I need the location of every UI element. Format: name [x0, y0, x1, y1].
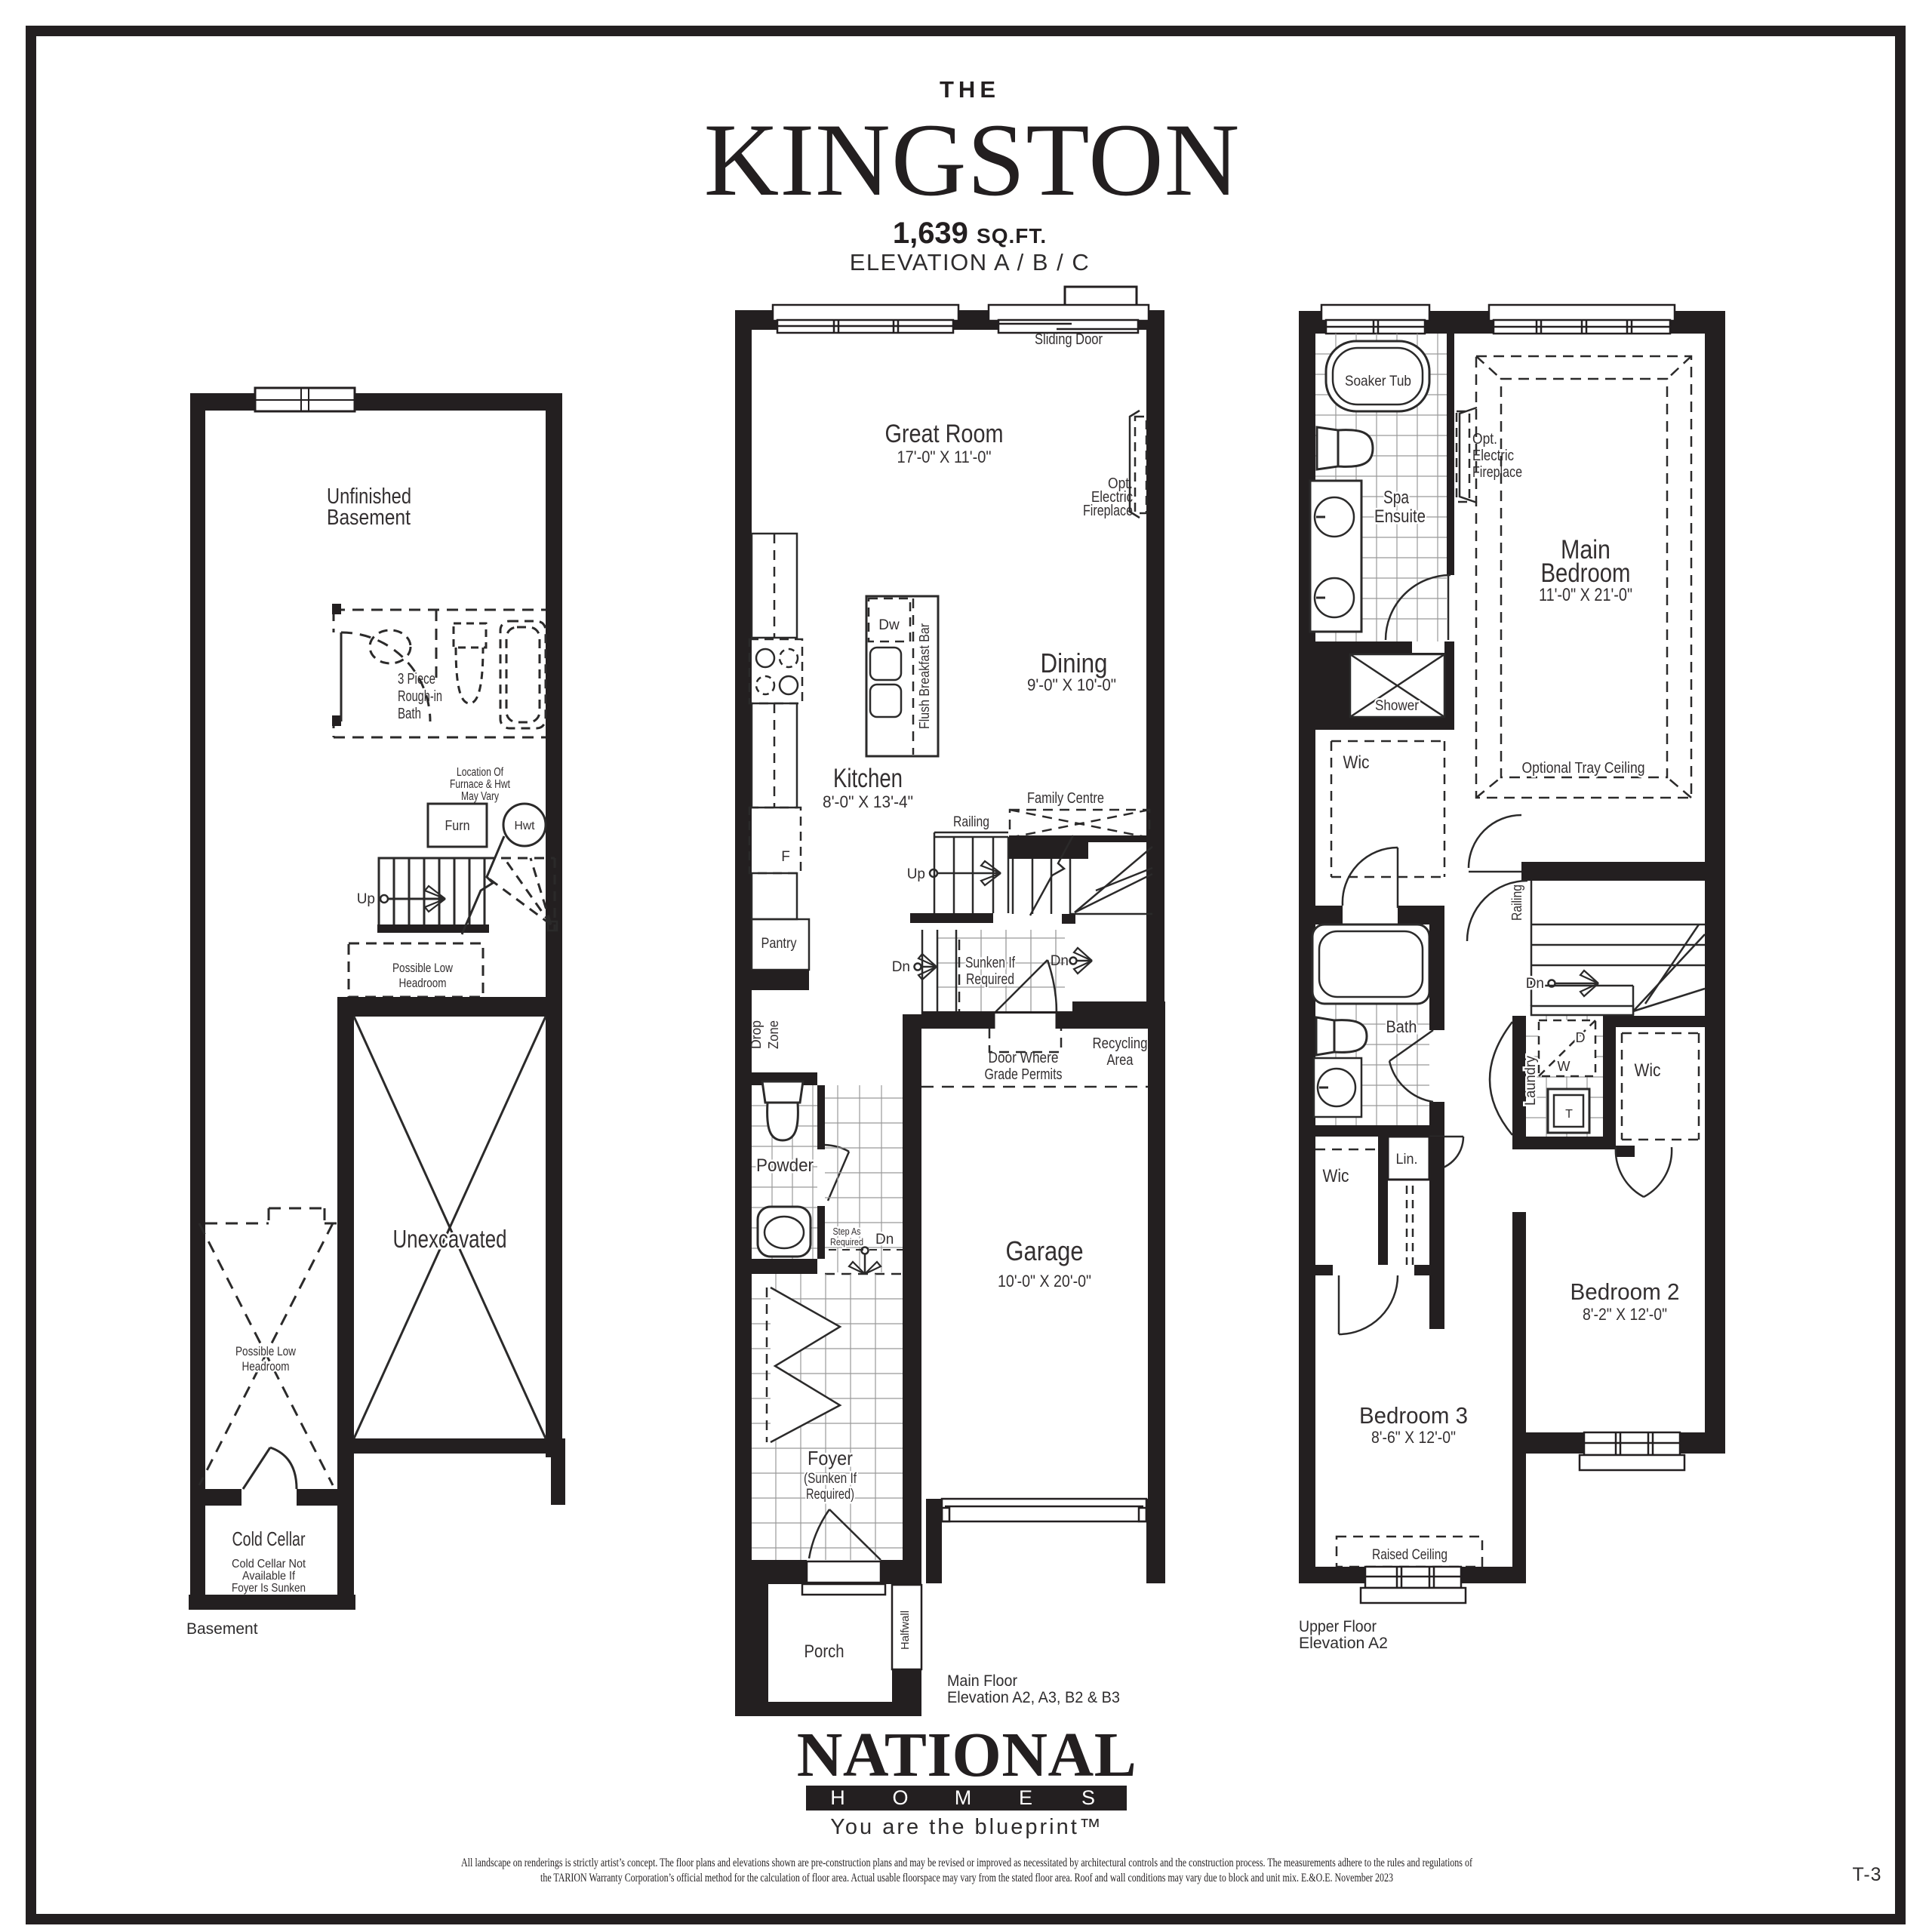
- svg-text:Laundry: Laundry: [1522, 1056, 1539, 1106]
- svg-text:Hwt: Hwt: [515, 820, 536, 832]
- svg-text:T-3: T-3: [1852, 1864, 1881, 1885]
- svg-text:Porch: Porch: [804, 1641, 844, 1662]
- svg-text:Required: Required: [830, 1236, 863, 1247]
- svg-text:Required): Required): [806, 1486, 854, 1503]
- svg-text:Railing: Railing: [1509, 884, 1524, 921]
- svg-text:Up: Up: [357, 891, 375, 907]
- svg-text:8'-2" X 12'-0": 8'-2" X 12'-0": [1583, 1305, 1667, 1324]
- svg-text:Lin.: Lin.: [1396, 1151, 1418, 1168]
- svg-text:Dn: Dn: [1051, 953, 1069, 969]
- svg-text:THE: THE: [940, 76, 1000, 103]
- svg-text:Raised Ceiling: Raised Ceiling: [1372, 1546, 1447, 1563]
- svg-text:the TARION Warranty Corporatio: the TARION Warranty Corporation’s offici…: [540, 1872, 1393, 1884]
- svg-text:Dining: Dining: [1041, 648, 1108, 678]
- svg-text:Location Of: Location Of: [457, 766, 504, 779]
- svg-text:Cold Cellar: Cold Cellar: [232, 1527, 306, 1550]
- svg-text:All landscape on renderings is: All landscape on renderings is strictly …: [461, 1857, 1473, 1869]
- svg-text:(Sunken If: (Sunken If: [804, 1470, 857, 1487]
- svg-text:Headroom: Headroom: [399, 977, 447, 990]
- svg-text:10'-0" X 20'-0": 10'-0" X 20'-0": [998, 1272, 1091, 1291]
- svg-text:Soaker Tub: Soaker Tub: [1345, 373, 1411, 389]
- svg-text:3 Piece: 3 Piece: [398, 671, 435, 688]
- svg-text:11'-0" X 21'-0": 11'-0" X 21'-0": [1539, 585, 1632, 605]
- svg-text:Elevation A2, A3, B2 & B3: Elevation A2, A3, B2 & B3: [947, 1689, 1120, 1706]
- svg-text:Bath: Bath: [1386, 1017, 1417, 1036]
- svg-text:Drop: Drop: [748, 1020, 764, 1049]
- svg-text:E: E: [1019, 1786, 1032, 1809]
- svg-text:Dn: Dn: [892, 959, 910, 975]
- svg-text:Flush Breakfast Bar: Flush Breakfast Bar: [917, 623, 932, 729]
- svg-text:Dw: Dw: [878, 617, 900, 633]
- svg-text:Elevation A2: Elevation A2: [1299, 1635, 1388, 1652]
- svg-text:S: S: [1081, 1786, 1095, 1809]
- svg-text:ELEVATION A / B / C: ELEVATION A / B / C: [850, 249, 1091, 275]
- svg-text:Main Floor: Main Floor: [947, 1672, 1017, 1690]
- svg-text:Bedroom: Bedroom: [1541, 558, 1631, 588]
- svg-text:Halfwall: Halfwall: [899, 1611, 912, 1650]
- svg-text:Family Centre: Family Centre: [1027, 789, 1104, 807]
- svg-text:Possible Low: Possible Low: [392, 961, 453, 975]
- svg-text:Garage: Garage: [1006, 1235, 1084, 1266]
- svg-text:Basement: Basement: [327, 506, 411, 530]
- svg-text:Area: Area: [1107, 1051, 1134, 1069]
- svg-text:17'-0" X 11'-0": 17'-0" X 11'-0": [897, 448, 992, 466]
- svg-text:Unexcavated: Unexcavated: [393, 1225, 507, 1253]
- svg-text:Up: Up: [907, 866, 925, 882]
- svg-text:Headroom: Headroom: [242, 1360, 290, 1374]
- svg-text:Sunken If: Sunken If: [965, 954, 1015, 971]
- svg-text:W: W: [1558, 1059, 1571, 1074]
- svg-text:May Vary: May Vary: [461, 790, 499, 803]
- svg-text:Furnace & Hwt: Furnace & Hwt: [450, 778, 511, 791]
- svg-text:Fireplace: Fireplace: [1472, 463, 1522, 481]
- svg-text:F: F: [781, 849, 790, 865]
- svg-text:Basement: Basement: [186, 1620, 258, 1638]
- svg-text:Fireplace: Fireplace: [1083, 502, 1133, 519]
- svg-text:8'-6" X 12'-0": 8'-6" X 12'-0": [1371, 1428, 1456, 1447]
- svg-text:Foyer Is Sunken: Foyer Is Sunken: [232, 1582, 306, 1595]
- svg-text:Grade Permits: Grade Permits: [985, 1066, 1063, 1083]
- svg-text:Powder: Powder: [756, 1155, 814, 1176]
- svg-text:9'-0" X 10'-0": 9'-0" X 10'-0": [1027, 675, 1116, 694]
- svg-text:Available If: Available If: [242, 1570, 295, 1583]
- svg-text:Bedroom 3: Bedroom 3: [1359, 1402, 1468, 1429]
- svg-text:Zone: Zone: [765, 1020, 781, 1049]
- svg-text:Dn: Dn: [875, 1232, 894, 1247]
- svg-text:Bedroom 2: Bedroom 2: [1571, 1278, 1680, 1305]
- svg-text:Recycling: Recycling: [1093, 1035, 1148, 1052]
- svg-text:Wic: Wic: [1343, 752, 1370, 773]
- svg-text:Furn: Furn: [445, 818, 470, 833]
- svg-text:Rough-in: Rough-in: [398, 688, 442, 705]
- svg-text:Required: Required: [966, 971, 1014, 988]
- svg-text:M: M: [955, 1786, 972, 1809]
- svg-text:Step As: Step As: [833, 1226, 861, 1237]
- svg-text:D: D: [1576, 1030, 1586, 1045]
- svg-text:KINGSTON: KINGSTON: [704, 102, 1241, 217]
- svg-text:Wic: Wic: [1323, 1166, 1349, 1186]
- svg-text:You are the blueprint™: You are the blueprint™: [830, 1815, 1103, 1839]
- svg-text:T: T: [1565, 1108, 1573, 1121]
- svg-text:Great Room: Great Room: [885, 420, 1004, 448]
- svg-text:Shower: Shower: [1375, 697, 1419, 714]
- svg-text:Upper Floor: Upper Floor: [1299, 1618, 1377, 1635]
- svg-text:NATIONAL: NATIONAL: [797, 1720, 1137, 1790]
- svg-text:Foyer: Foyer: [808, 1447, 853, 1469]
- svg-text:Electric: Electric: [1472, 447, 1514, 464]
- svg-text:Wic: Wic: [1635, 1060, 1661, 1081]
- svg-text:Sliding Door: Sliding Door: [1035, 331, 1103, 348]
- svg-text:Cold Cellar Not: Cold Cellar Not: [232, 1558, 306, 1571]
- svg-text:Possible Low: Possible Low: [235, 1345, 296, 1358]
- svg-text:H: H: [830, 1786, 845, 1809]
- svg-text:O: O: [892, 1786, 908, 1809]
- svg-text:Bath: Bath: [398, 706, 421, 722]
- svg-text:Ensuite: Ensuite: [1374, 506, 1426, 527]
- svg-text:Spa: Spa: [1383, 488, 1410, 508]
- svg-text:Dn: Dn: [1526, 976, 1544, 992]
- svg-text:Pantry: Pantry: [761, 935, 797, 952]
- svg-text:8'-0" X 13'-4": 8'-0" X 13'-4": [823, 792, 913, 811]
- svg-text:Kitchen: Kitchen: [833, 764, 903, 793]
- svg-text:Door Where: Door Where: [989, 1049, 1059, 1066]
- svg-text:Optional Tray Ceiling: Optional Tray Ceiling: [1522, 759, 1645, 777]
- svg-text:Railing: Railing: [953, 814, 989, 830]
